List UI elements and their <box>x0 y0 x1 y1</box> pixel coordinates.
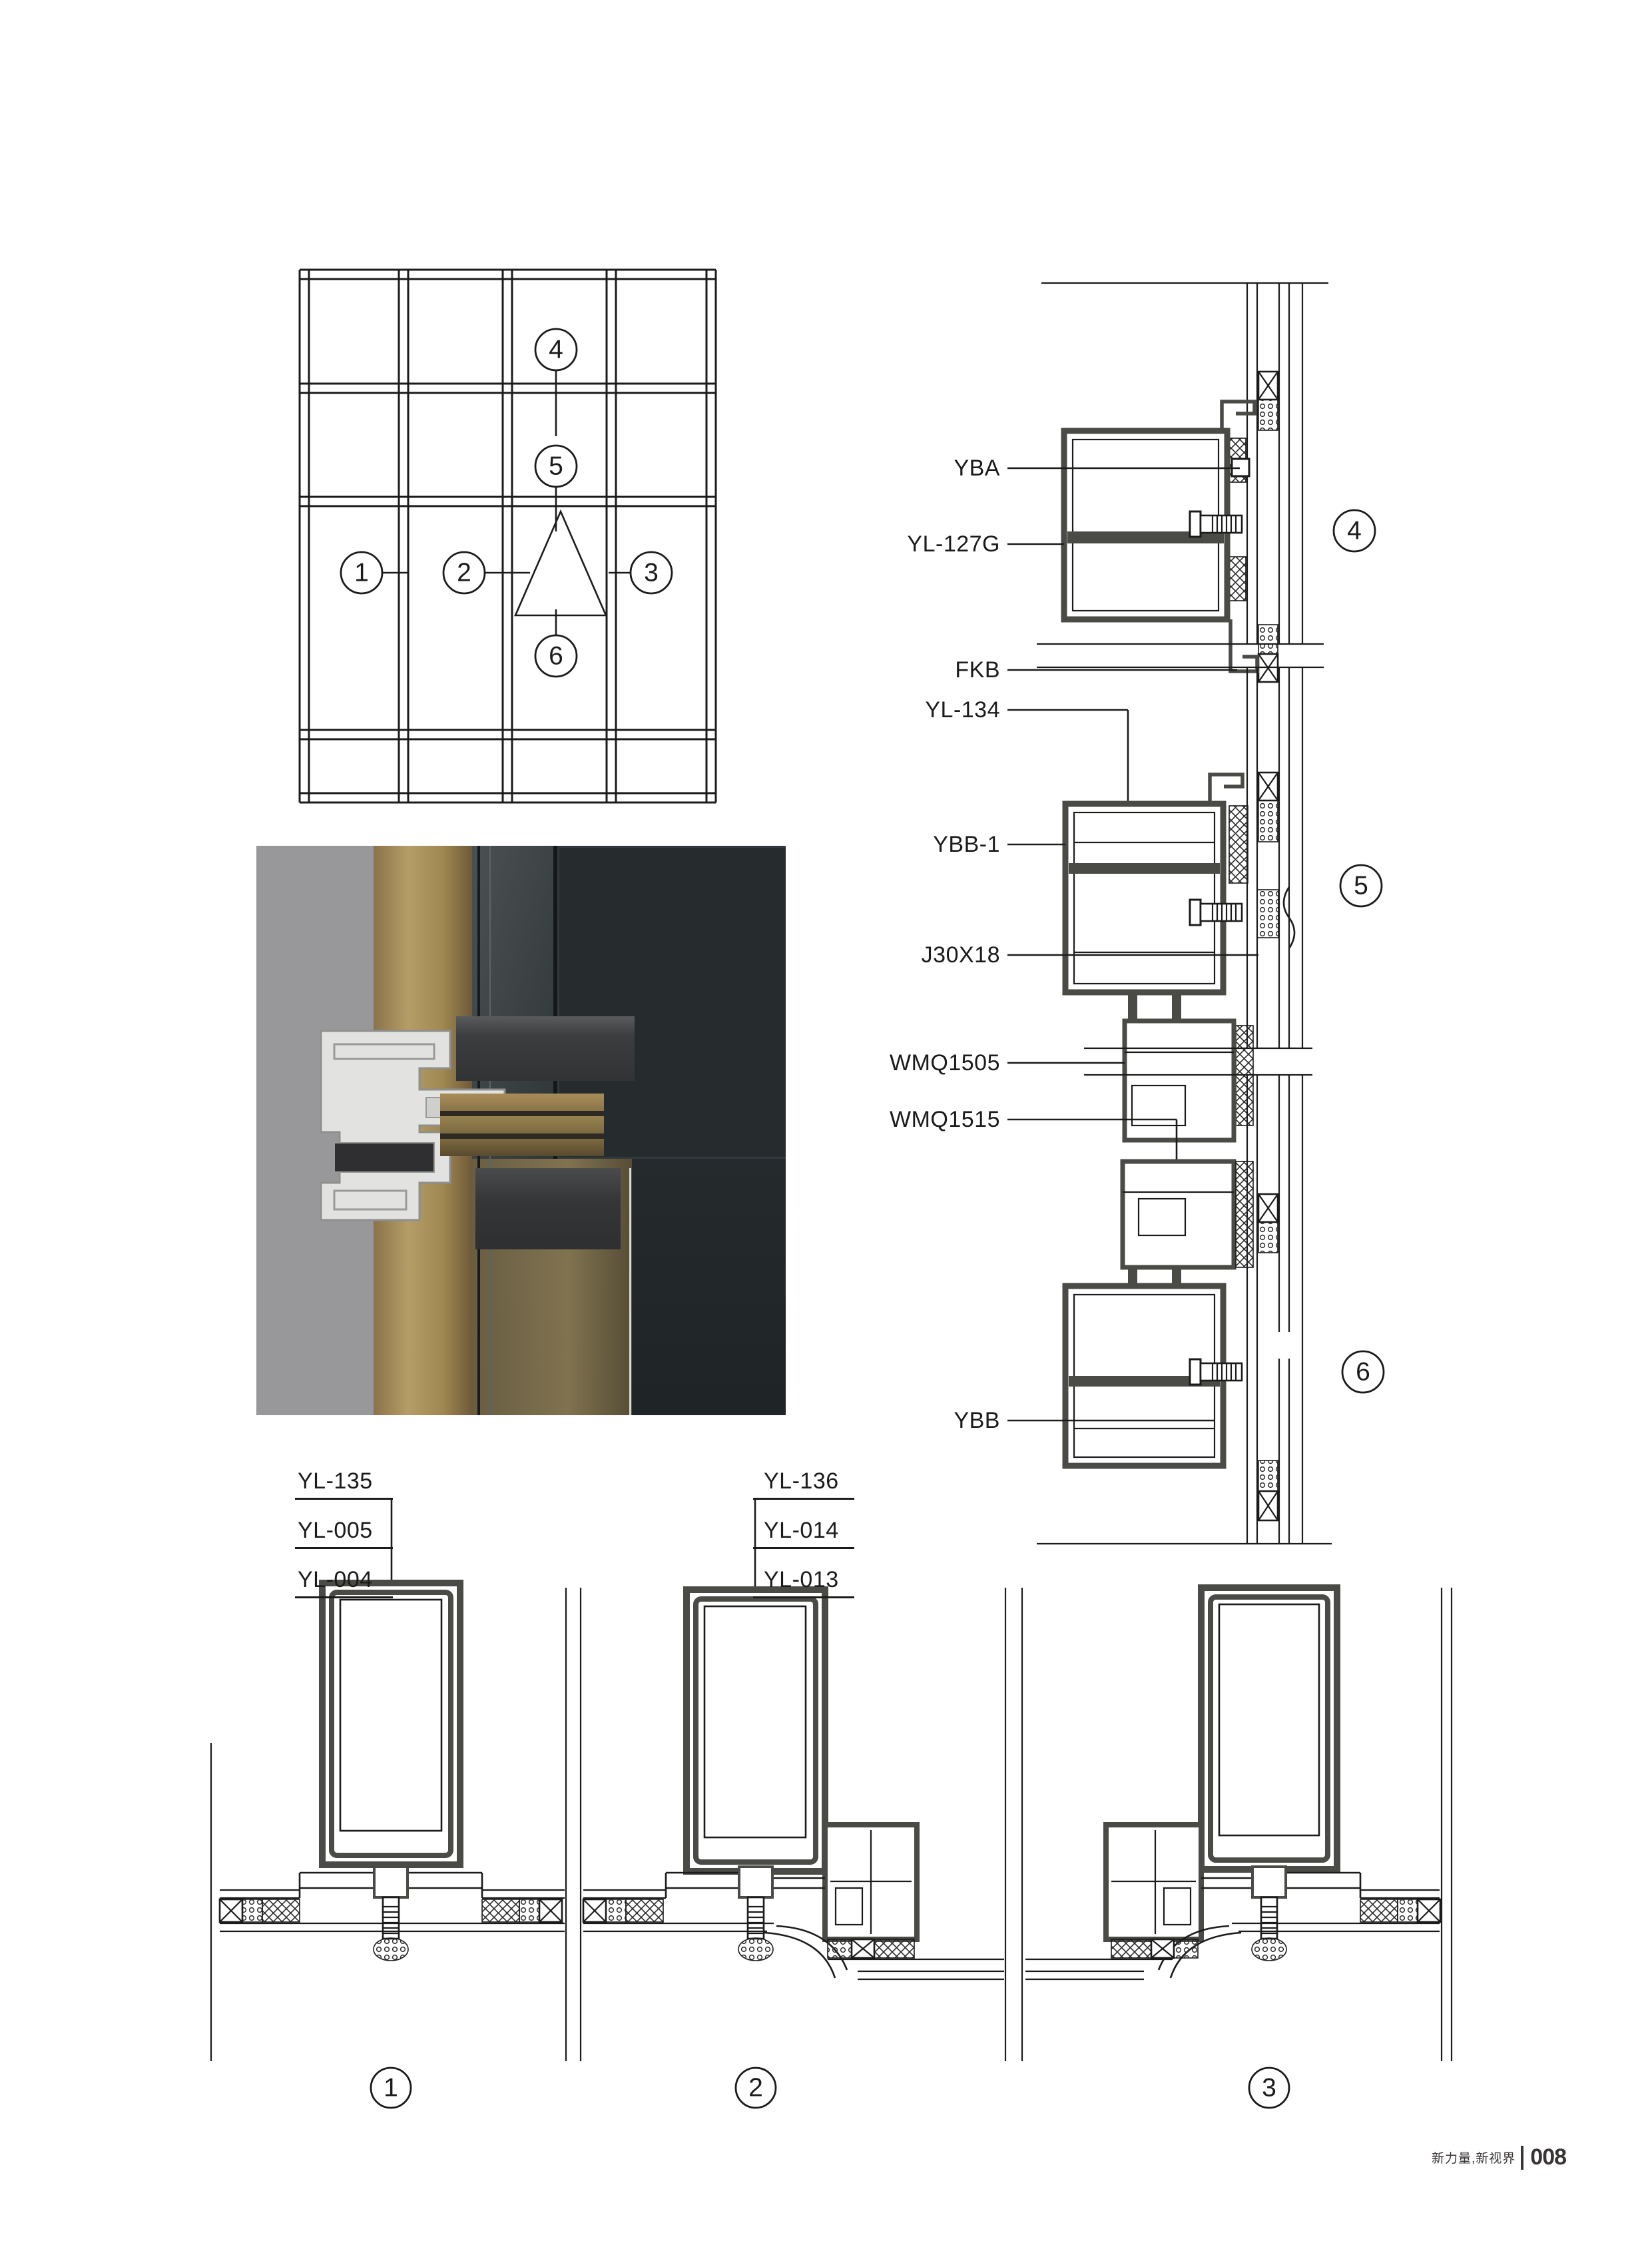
window-open-triangle <box>515 511 606 615</box>
callout-5: 5 <box>535 446 577 487</box>
detail-callout-1: 1 <box>371 2068 411 2108</box>
detail-callout-3: 3 <box>1249 2068 1289 2108</box>
anchor-bracket <box>1210 775 1242 804</box>
label-j30x18: J30X18 <box>922 942 1000 968</box>
stack-label: YL-014 <box>753 1500 854 1549</box>
mullion-profile <box>1065 1286 1242 1466</box>
page-footer: 新力量,新视界 008 <box>1432 2144 1566 2170</box>
callout-1: 1 <box>341 552 382 593</box>
window-frame-profile <box>1106 1825 1201 1939</box>
svg-text:4: 4 <box>1347 517 1362 545</box>
elevation-diagram: 4 5 1 2 3 6 <box>286 260 739 819</box>
svg-text:1: 1 <box>354 559 369 587</box>
detail-1-label-stack: YL-135 YL-005 YL-004 <box>295 1468 393 1598</box>
wall-glass-lines <box>1247 283 1302 644</box>
stack-label: YL-013 <box>753 1549 854 1598</box>
fkb-bracket <box>1231 619 1257 671</box>
footer-divider <box>1521 2146 1523 2170</box>
wall-glass-lines <box>1247 667 1302 1048</box>
section-details-column: 4 <box>859 266 1445 1565</box>
svg-text:5: 5 <box>1354 872 1368 900</box>
svg-text:6: 6 <box>549 642 563 671</box>
callout-3: 3 <box>631 552 672 593</box>
label-yba: YBA <box>954 455 1000 481</box>
detail-2-label-stack: YL-136 YL-014 YL-013 <box>753 1468 854 1598</box>
render-gold-shelf-2 <box>440 1116 604 1139</box>
svg-text:6: 6 <box>1356 1358 1370 1387</box>
callout-2: 2 <box>443 552 485 593</box>
stack-label: YL-135 <box>295 1468 393 1500</box>
render-bottom-cap <box>475 1168 621 1249</box>
render-gold-shelf-3 <box>440 1139 604 1156</box>
section-callout-5: 5 <box>1340 865 1382 906</box>
stack-label: YL-005 <box>295 1500 393 1549</box>
grid-lines <box>300 270 716 802</box>
profile-3d-render <box>256 846 786 1415</box>
section-callout-4: 4 <box>1334 510 1375 551</box>
label-ybb1: YBB-1 <box>933 831 1000 858</box>
callout-6: 6 <box>535 635 577 677</box>
label-ybb: YBB <box>954 1407 1000 1434</box>
page: 4 5 1 2 3 6 <box>0 0 1652 2241</box>
section-4-detail: 4 <box>1007 283 1375 682</box>
mullion-profile <box>1064 402 1257 671</box>
svg-text:4: 4 <box>549 336 563 364</box>
transom-profile <box>1007 710 1294 992</box>
footer-slogan: 新力量,新视界 <box>1432 2148 1515 2166</box>
callout-4: 4 <box>535 329 577 370</box>
svg-text:5: 5 <box>549 452 563 481</box>
svg-text:3: 3 <box>644 559 659 587</box>
pressure-plate-assembly <box>300 1867 482 1961</box>
svg-text:2: 2 <box>457 559 471 587</box>
render-edge-highlight <box>629 1168 631 1415</box>
callout-leaders <box>382 370 631 635</box>
insulation-hatch <box>1229 773 1278 1125</box>
mullion-core <box>1219 1604 1319 1835</box>
label-fkb: FKB <box>955 657 1000 683</box>
page-number: 008 <box>1530 2144 1566 2170</box>
anchor-bracket <box>1222 402 1254 431</box>
render-gold-shelf-1 <box>440 1094 604 1116</box>
label-wmq1515: WMQ1515 <box>890 1106 1000 1133</box>
window-frame-profile <box>825 1825 917 1939</box>
svg-text:2: 2 <box>748 2074 763 2102</box>
label-wmq1505: WMQ1505 <box>890 1050 1000 1076</box>
stack-label: YL-004 <box>295 1549 393 1598</box>
mullion-core <box>704 1606 806 1837</box>
pressure-plate-assembly <box>666 1867 847 1978</box>
detail-3: 3 <box>1025 1588 1440 2108</box>
label-yl134: YL-134 <box>925 697 1000 723</box>
upper-sub-frame <box>1007 1120 1253 1286</box>
stack-label: YL-136 <box>753 1468 854 1500</box>
detail-callout-2: 2 <box>736 2068 776 2108</box>
mullion-core <box>340 1600 441 1831</box>
label-yl127g: YL-127G <box>907 531 1000 557</box>
break-lines <box>1037 644 1324 667</box>
section-callout-6: 6 <box>1342 1351 1384 1393</box>
section-5-detail: 5 <box>1007 667 1382 1140</box>
svg-text:1: 1 <box>384 2074 398 2102</box>
sub-frame-profile <box>1125 992 1234 1140</box>
svg-text:3: 3 <box>1262 2074 1276 2102</box>
